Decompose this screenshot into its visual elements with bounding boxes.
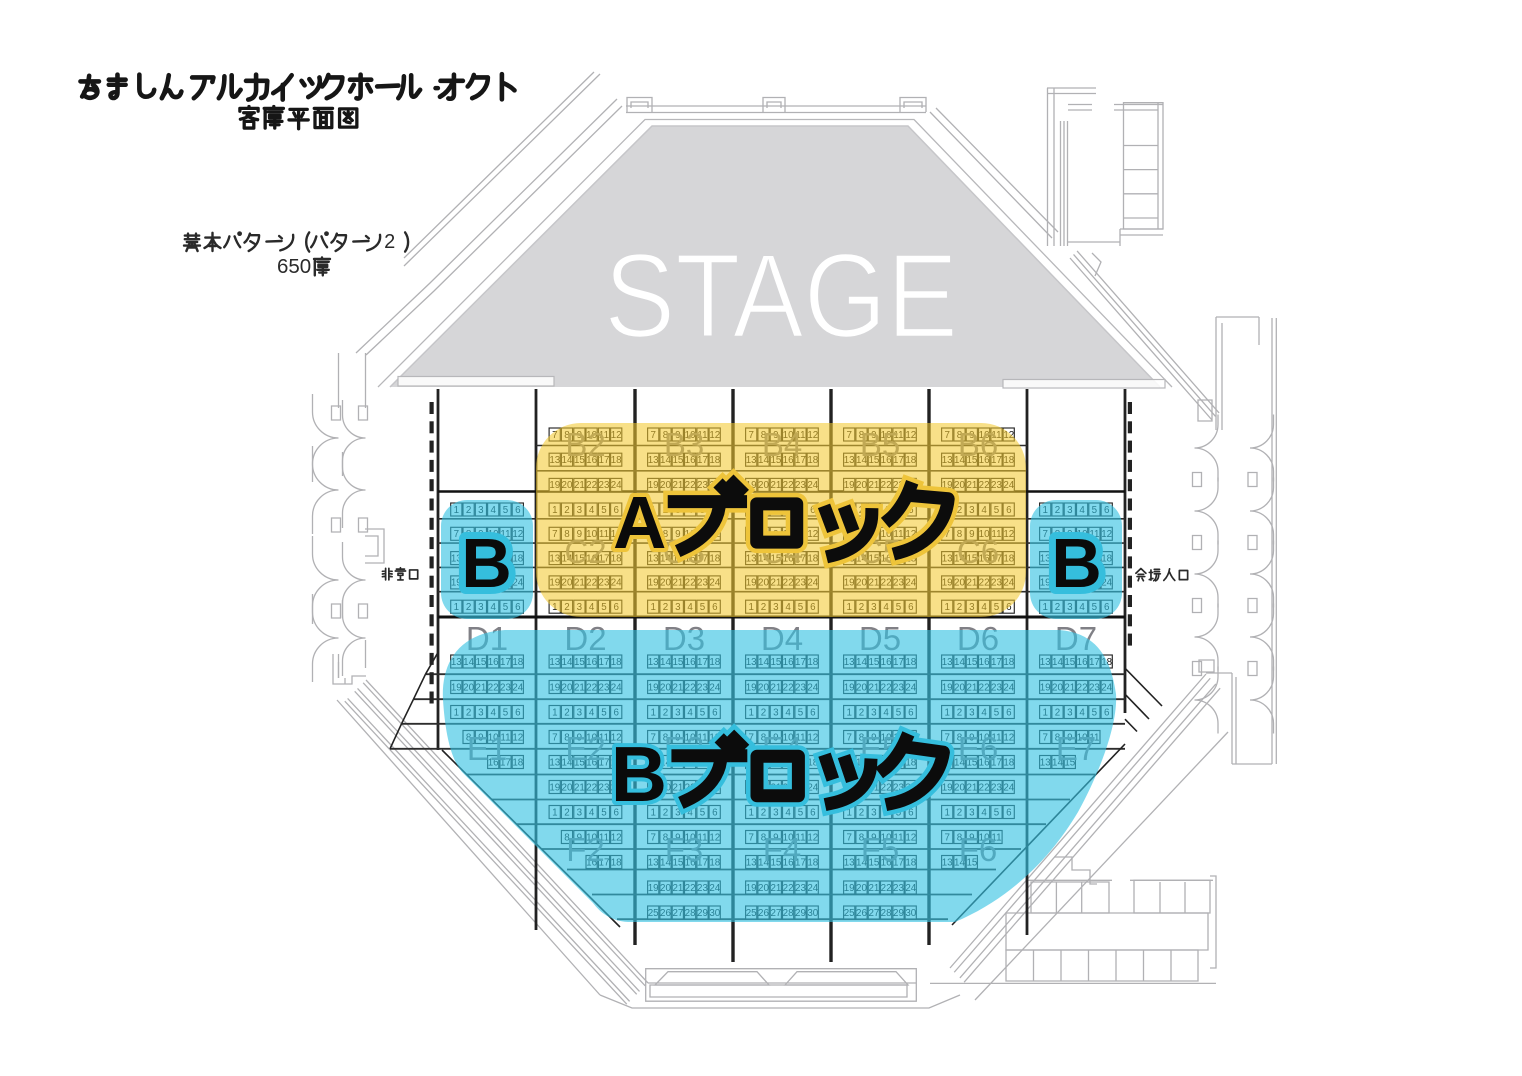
svg-text:650: 650 <box>277 255 311 278</box>
svg-text:B: B <box>461 524 512 602</box>
svg-text:STAGE: STAGE <box>604 229 958 363</box>
svg-text:B: B <box>611 730 667 818</box>
svg-text:B: B <box>1051 524 1102 602</box>
svg-text:A: A <box>613 481 666 564</box>
svg-text:2: 2 <box>384 231 395 253</box>
